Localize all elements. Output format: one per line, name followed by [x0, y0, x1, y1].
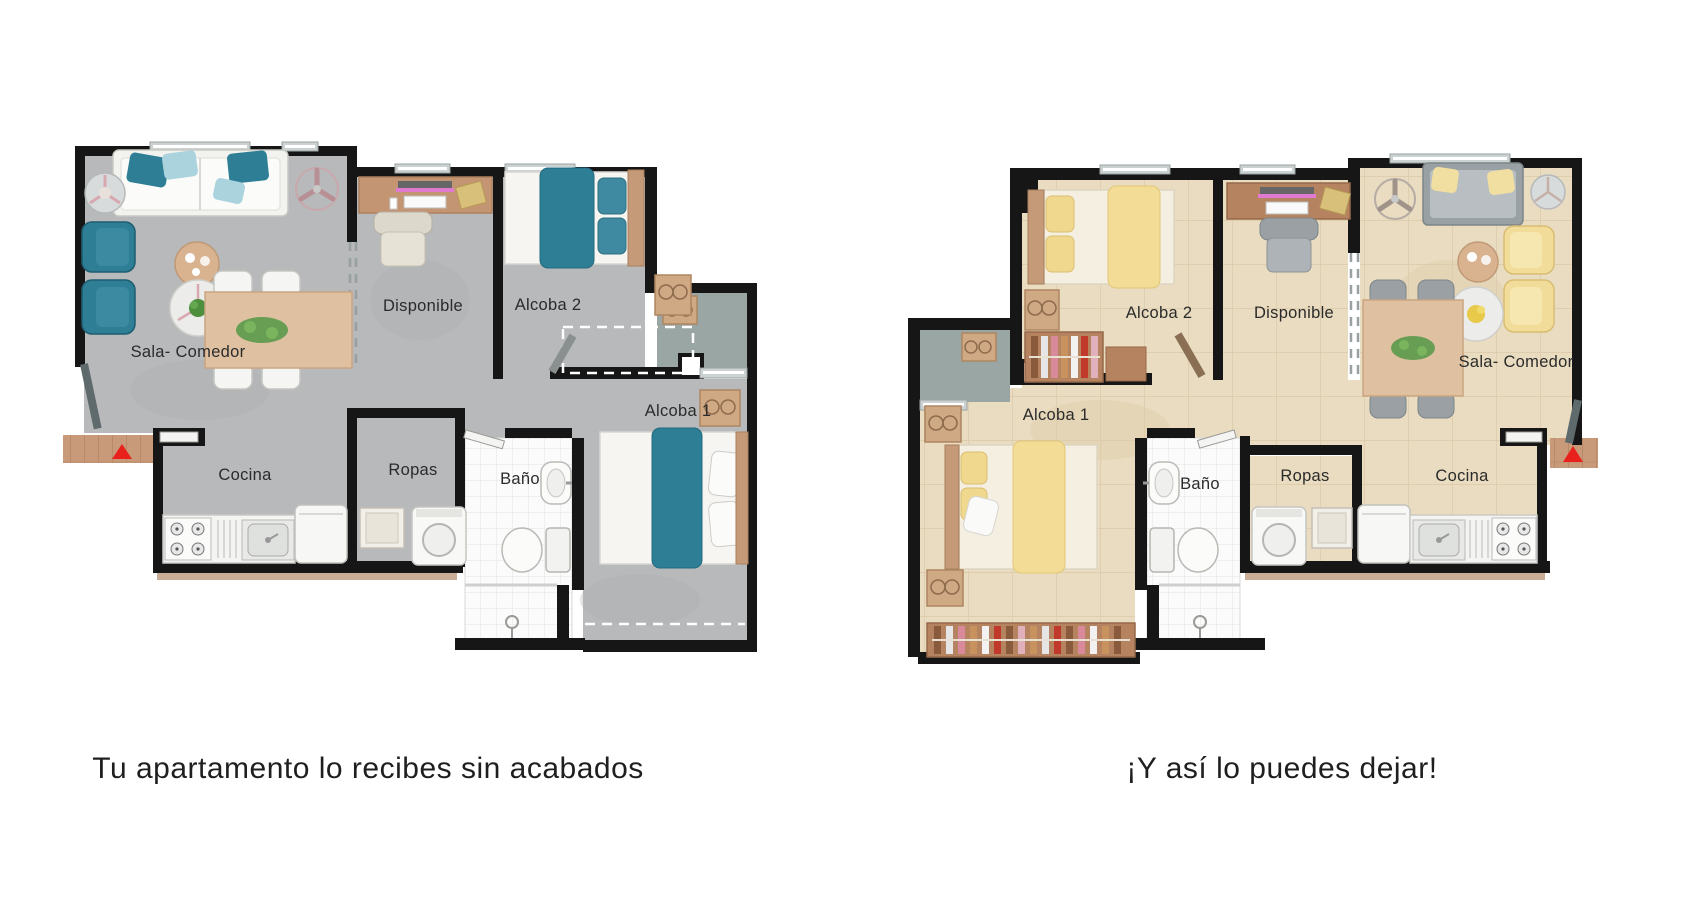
room-label-sala-comedor: Sala- Comedor: [1459, 353, 1574, 371]
room-label-disponible: Disponible: [1254, 304, 1334, 322]
side-table-round: [85, 173, 125, 213]
laundry-cabinet: [1312, 508, 1352, 548]
stove-icon: [1492, 518, 1536, 560]
room-label-bano: Baño: [1180, 475, 1220, 493]
room-label-alcoba1: Alcoba 1: [645, 402, 712, 420]
room-label-alcoba2: Alcoba 2: [515, 296, 582, 314]
bed-alcoba1: [600, 428, 748, 568]
room-label-cocina: Cocina: [218, 466, 272, 484]
entry-landing: [63, 435, 155, 463]
stove-icon: [165, 518, 211, 560]
floorplan-unfinished: Sala- Comedor Disponible Alcoba 2 Alcoba…: [63, 142, 757, 652]
washer-icon: [1252, 507, 1306, 565]
bath-sink-icon: [541, 462, 572, 504]
floorplan-finished: Alcoba 2 Disponible Sala- Comedor Alcoba…: [908, 154, 1598, 664]
side-table-round: [1531, 175, 1565, 209]
bed-alcoba2: [505, 168, 644, 268]
kitchen-counter: [163, 515, 295, 563]
fridge-icon: [1358, 505, 1410, 563]
toilet-icon: [1150, 528, 1218, 572]
room-label-ropas: Ropas: [388, 461, 437, 479]
room-label-ropas: Ropas: [1280, 467, 1329, 485]
sofa: [113, 150, 288, 216]
balcony-planter: [962, 333, 996, 361]
nightstand-alcoba2: [655, 275, 691, 315]
nightstand-alcoba2: [1025, 290, 1059, 330]
room-label-alcoba1: Alcoba 1: [1023, 406, 1090, 424]
kitchen-counter: [1410, 515, 1537, 563]
caption-finished: ¡Y así lo puedes dejar!: [1126, 752, 1437, 786]
closet-alcoba1: [927, 623, 1135, 657]
fridge-icon: [295, 505, 347, 563]
laundry-cabinet: [360, 508, 404, 548]
sofa: [1423, 163, 1523, 225]
caption-unfinished: Tu apartamento lo recibes sin acabados: [92, 752, 644, 786]
room-label-disponible: Disponible: [383, 297, 463, 315]
closet-drawer: [1106, 347, 1146, 381]
toilet-icon: [502, 528, 570, 572]
bed-alcoba2: [1028, 186, 1174, 288]
room-label-sala-comedor: Sala- Comedor: [131, 343, 246, 361]
kitchen-sink-icon: [1413, 520, 1465, 560]
kitchen-sink-icon: [242, 520, 294, 560]
bed-alcoba1: [945, 441, 1097, 573]
room-label-cocina: Cocina: [1435, 467, 1489, 485]
room-label-bano: Baño: [500, 470, 540, 488]
room-label-alcoba2: Alcoba 2: [1126, 304, 1193, 322]
washer-icon: [412, 507, 466, 565]
kitchen-door: [1506, 432, 1542, 442]
kitchen-door: [160, 432, 198, 442]
